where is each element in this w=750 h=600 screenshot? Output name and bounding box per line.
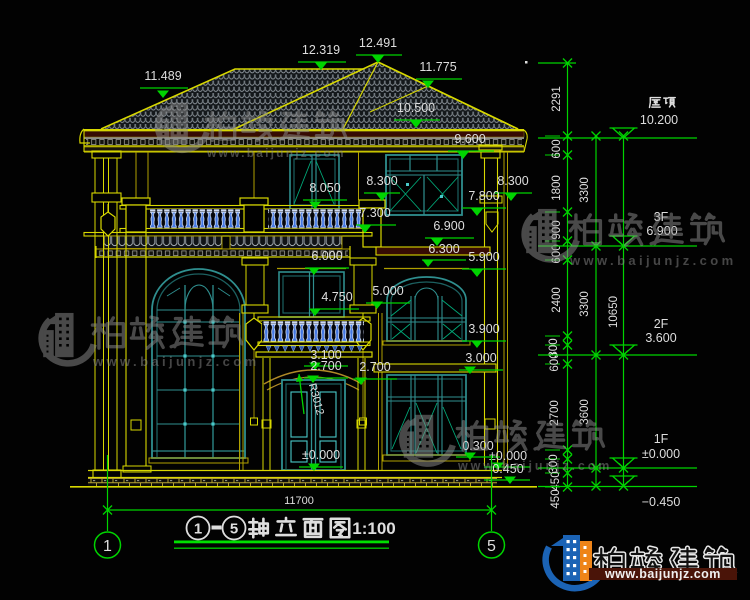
svg-text:450: 450: [550, 489, 562, 508]
svg-text:5: 5: [230, 521, 238, 538]
svg-text:www.baijunjz.com: www.baijunjz.com: [92, 354, 260, 369]
svg-text:10.500: 10.500: [397, 101, 435, 115]
svg-text:2.700: 2.700: [310, 359, 341, 373]
svg-text:5.900: 5.900: [468, 250, 499, 264]
svg-text:9.600: 9.600: [454, 132, 485, 146]
svg-text:7.300: 7.300: [359, 206, 390, 220]
svg-text:3.900: 3.900: [468, 322, 499, 336]
svg-text:12.319: 12.319: [302, 43, 340, 57]
svg-text:±0.000: ±0.000: [642, 447, 680, 461]
svg-text:1F: 1F: [654, 432, 669, 446]
svg-text:1:100: 1:100: [352, 519, 395, 538]
svg-text:1: 1: [103, 538, 112, 555]
svg-text:8.300: 8.300: [366, 174, 397, 188]
svg-text:10650: 10650: [608, 296, 620, 328]
svg-text:600: 600: [551, 139, 563, 158]
svg-text:1: 1: [194, 521, 202, 538]
svg-text:11700: 11700: [284, 495, 314, 507]
svg-text:5.000: 5.000: [372, 284, 403, 298]
svg-text:3300: 3300: [579, 177, 591, 203]
svg-text:5: 5: [487, 538, 496, 555]
svg-text:6.300: 6.300: [428, 242, 459, 256]
svg-text:6.000: 6.000: [311, 249, 342, 263]
svg-text:±0.000: ±0.000: [302, 448, 340, 462]
svg-text:1800: 1800: [551, 175, 563, 201]
svg-text:450: 450: [550, 471, 562, 490]
svg-text:www.baijunjz.com: www.baijunjz.com: [604, 567, 721, 581]
svg-text:11.775: 11.775: [419, 60, 456, 74]
svg-text:3.000: 3.000: [465, 351, 496, 365]
svg-text:www.baijunjz.com: www.baijunjz.com: [206, 146, 346, 160]
svg-text:4.750: 4.750: [321, 290, 352, 304]
svg-text:2F: 2F: [654, 317, 669, 331]
svg-text:www.baijunjz.com: www.baijunjz.com: [569, 253, 737, 268]
svg-text:www.baijunjz.com: www.baijunjz.com: [457, 459, 612, 473]
svg-text:7.800: 7.800: [468, 189, 499, 203]
svg-text:2400: 2400: [551, 287, 563, 313]
svg-text:6.900: 6.900: [433, 219, 464, 233]
svg-text:2.700: 2.700: [359, 360, 390, 374]
svg-text:2291: 2291: [551, 86, 563, 112]
svg-text:3.600: 3.600: [645, 331, 676, 345]
svg-text:11.489: 11.489: [144, 69, 181, 83]
svg-text:12.491: 12.491: [359, 36, 397, 50]
svg-text:3300: 3300: [579, 291, 591, 317]
svg-text:−0.450: −0.450: [642, 495, 681, 509]
svg-text:8.300: 8.300: [497, 174, 528, 188]
svg-text:10.200: 10.200: [640, 113, 678, 127]
svg-text:8.050: 8.050: [309, 181, 340, 195]
